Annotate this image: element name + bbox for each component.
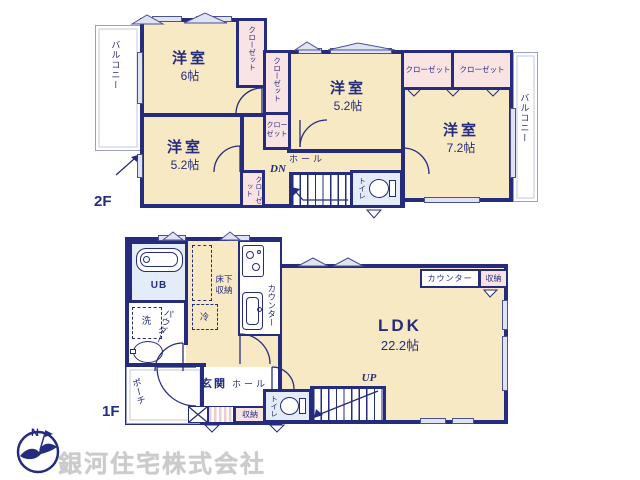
toilet-2f-tank-icon [389,180,396,197]
unit-bath-label: UB [144,280,174,292]
closet-2f-3: クローゼット [263,112,291,150]
vent-1f-entrance [205,425,219,432]
room-72-label: 洋室 7.2帖 [420,122,502,156]
window-1f-ldk-right-2 [502,336,508,391]
closet-2f-4-label: クローゼット [244,175,263,205]
toilet-1f-label: トイレ [269,395,278,418]
ldk-name: LDK [330,316,470,336]
room-52-top-label: 洋室 5.2帖 [308,80,388,114]
washbasin-icon [133,341,163,363]
room-52-left-name: 洋室 [145,139,225,156]
ldk-counter-label: カウンター [422,274,478,283]
bathtub-icon [136,248,183,272]
toilet-2f-bowl-icon [369,179,389,198]
stairs-1f [310,386,386,423]
window-2f-room6-top-2 [196,16,232,22]
window-2f-room6-left [137,52,143,104]
toilet-2f: トイレ [350,170,403,208]
ldk-counter: カウンター [420,269,480,288]
window-1f-ub-top [158,235,186,241]
entrance-step-hatch [188,406,208,423]
kitchen-sink-icon [242,292,263,330]
toilet-2f-label: トイレ [357,177,366,200]
window-2f-room6-top-1 [152,16,182,22]
kitchen-counter-strip: カウンター [238,240,282,336]
balcony-left-2f: バルコニー [95,25,141,151]
floor2-label: 2F [94,193,134,210]
closet-2f-1-label: クローゼット [247,26,256,71]
hall-1f-label: ホール [228,379,272,389]
underfloor-storage-label: 床下収納 [213,274,235,296]
window-1f-ldk-bottom-1 [420,418,446,424]
room-6-label: 洋室 6帖 [150,50,230,84]
ldk-storage-label: 収納 [481,274,506,283]
window-1f-ldk-right-1 [502,300,508,330]
floor-plan-canvas: バルコニー バルコニー クローゼット クローゼット クローゼット クローゼット … [0,0,640,480]
room-52-top-size: 5.2帖 [308,100,388,114]
stove-burner-1 [246,251,254,259]
closet-2f-2: クローゼット [263,50,291,116]
closet-2f-5: クローゼット [401,50,455,90]
closet-2f-6: クローゼット [451,50,513,90]
balcony-left-label: バルコニー [110,40,120,90]
entrance-step-stripes [208,406,234,423]
toilet-1f-bowl-icon [280,397,299,415]
stairs-2f-dn-label: DN [266,163,290,176]
stairs-2f [289,172,353,208]
compass-icon: N [18,427,58,472]
ldk-label: LDK 22.2帖 [330,316,470,353]
floor1-label: 1F [102,403,142,420]
refrigerator-box: 冷 [192,304,218,330]
window-1f-ldk-bottom-2 [452,418,474,424]
porch-top-wall [126,363,206,367]
washbasin-tap-icon [130,349,136,354]
pantry-dashed-box [192,245,212,301]
hall-2f-label: ホール [285,154,329,164]
room-72-name: 洋室 [420,122,502,139]
stove-burner-2 [252,263,260,271]
closet-2f-6-label: クローゼット [454,66,510,75]
ldk-size: 22.2帖 [330,339,470,354]
window-2f-room72-right [510,108,516,178]
closet-2f-5-label: クローゼット [404,66,452,75]
room-52-left-size: 5.2帖 [145,159,225,173]
stove-icon [242,245,264,277]
balcony-tick [116,159,134,175]
closet-2f-4: クローゼット [240,170,265,208]
window-1f-kitchen-top [228,235,250,241]
window-2f-room52top-1 [298,48,322,54]
room-52-left-label: 洋室 5.2帖 [145,139,225,173]
window-2f-room52-left [137,154,143,178]
kitchen-counter-label: カウンター [266,284,276,327]
room-6-name: 洋室 [150,50,230,67]
vent-2f-toilet [367,210,381,218]
stairs-1f-up-label: UP [356,372,382,385]
balcony-right-2f: バルコニー [513,52,538,202]
laundry-label: 洗 [133,317,160,328]
powder-wall [184,303,188,345]
room-52-top-name: 洋室 [308,80,388,97]
company-watermark: 銀河住宅株式会社 [58,444,266,479]
closet-2f-2-label: クローゼット [272,57,281,102]
sink-faucet [257,307,262,312]
stove-burner-3 [257,250,261,254]
room-6-size: 6帖 [150,70,230,84]
closet-2f-3-label: クローゼット [266,121,288,139]
toilet-1f: トイレ [263,389,312,423]
window-2f-room52top-2 [330,48,392,54]
hall-storage-label: 収納 [236,410,264,419]
hall-storage-1f: 収納 [234,406,266,423]
refrigerator-label: 冷 [193,312,216,322]
vent-1f-toilet [270,425,284,432]
toilet-1f-tank-icon [299,398,306,414]
unit-bath-1f: UB [129,241,188,303]
window-2f-room72-bottom [424,197,480,203]
compass-north-label: N [31,427,39,439]
room-72-size: 7.2帖 [420,142,502,156]
ldk-storage: 収納 [479,269,508,288]
balcony-right-label: バルコニー [519,93,529,143]
bathtub-drain [143,256,150,263]
